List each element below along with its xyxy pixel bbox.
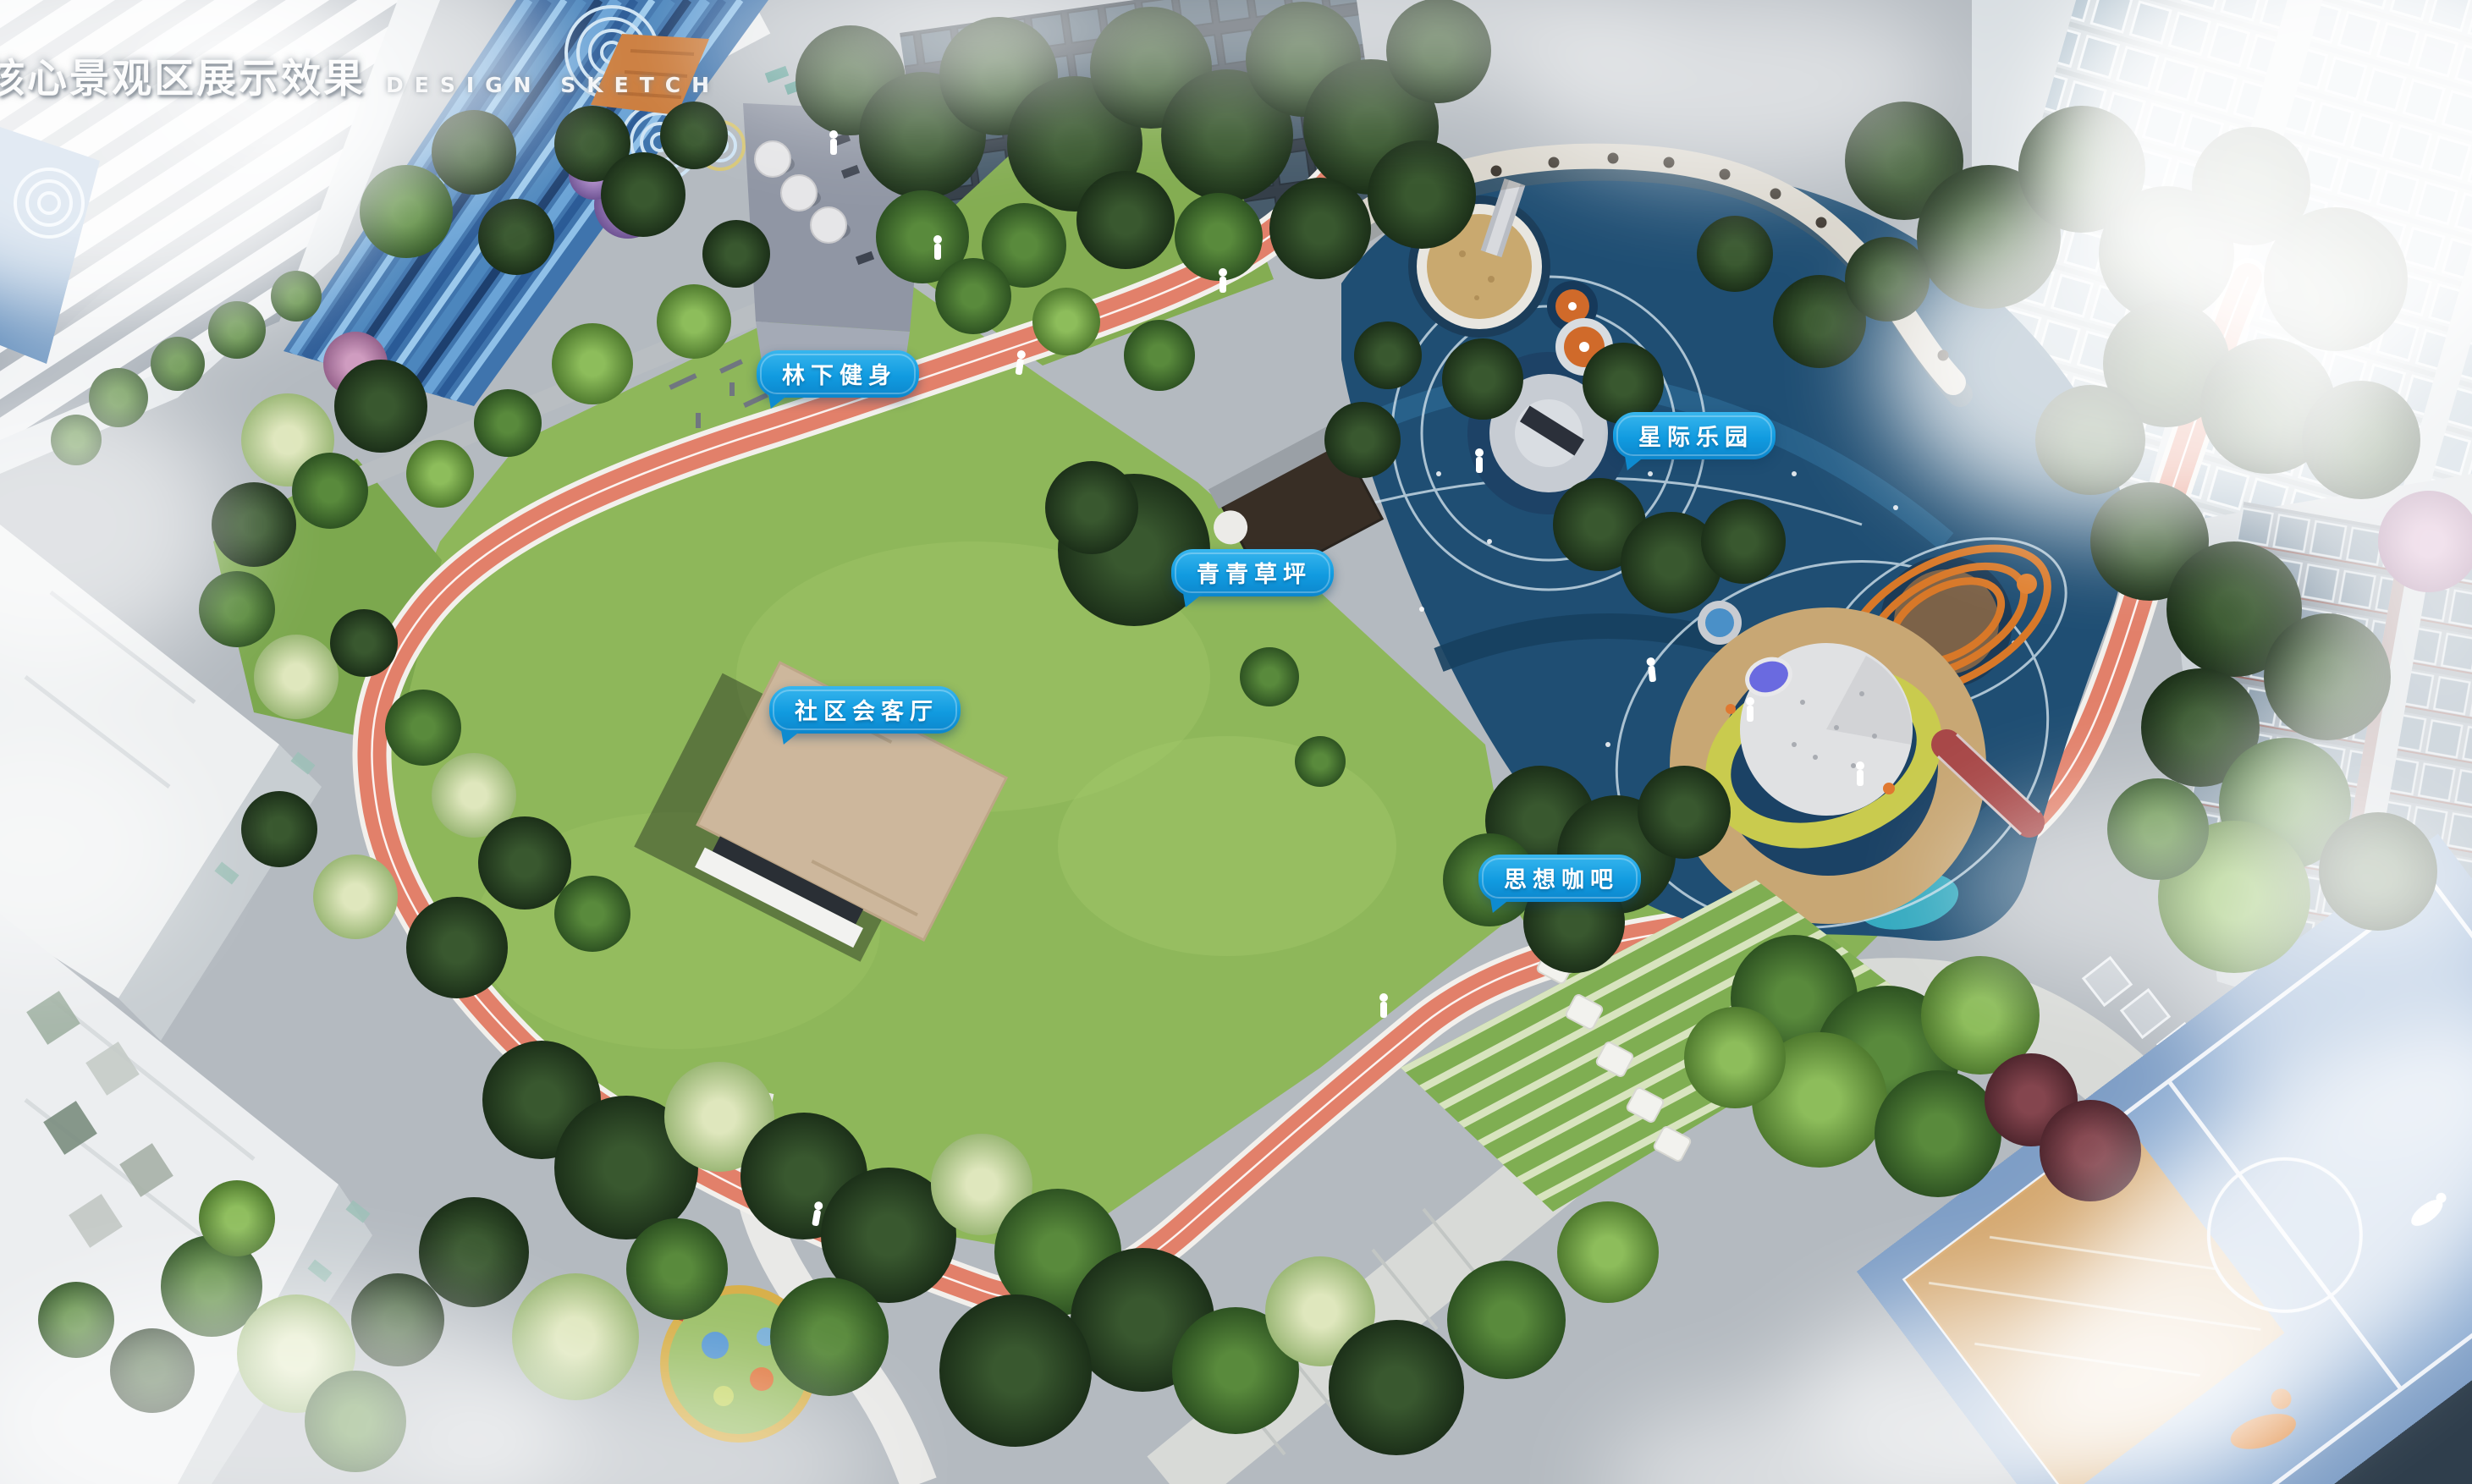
aerial-rendering-canvas [0, 0, 2472, 1484]
area-label-thinking-cafe: 思想咖吧 [1478, 855, 1641, 902]
area-label-text: 社区会客厅 [795, 699, 939, 725]
area-label-text: 星际乐园 [1638, 425, 1754, 451]
area-label-green-lawn: 青青草坪 [1171, 549, 1334, 596]
page-title: 核心景观区展示效果 DESIGN SKETCH [0, 46, 720, 104]
area-label-community-living-room: 社区会客厅 [769, 686, 961, 734]
area-label-text: 青青草坪 [1197, 562, 1312, 588]
area-label-forest-fitness: 林下健身 [757, 350, 919, 398]
design-rendering: 核心景观区展示效果 DESIGN SKETCH 林下健身 星际乐园 青青草坪 社… [0, 0, 2472, 1484]
area-label-star-playground: 星际乐园 [1613, 412, 1776, 459]
title-english: DESIGN SKETCH [386, 73, 720, 97]
area-label-text: 思想咖吧 [1504, 867, 1619, 893]
area-label-text: 林下健身 [782, 363, 897, 389]
title-chinese: 核心景观区展示效果 [0, 46, 366, 104]
